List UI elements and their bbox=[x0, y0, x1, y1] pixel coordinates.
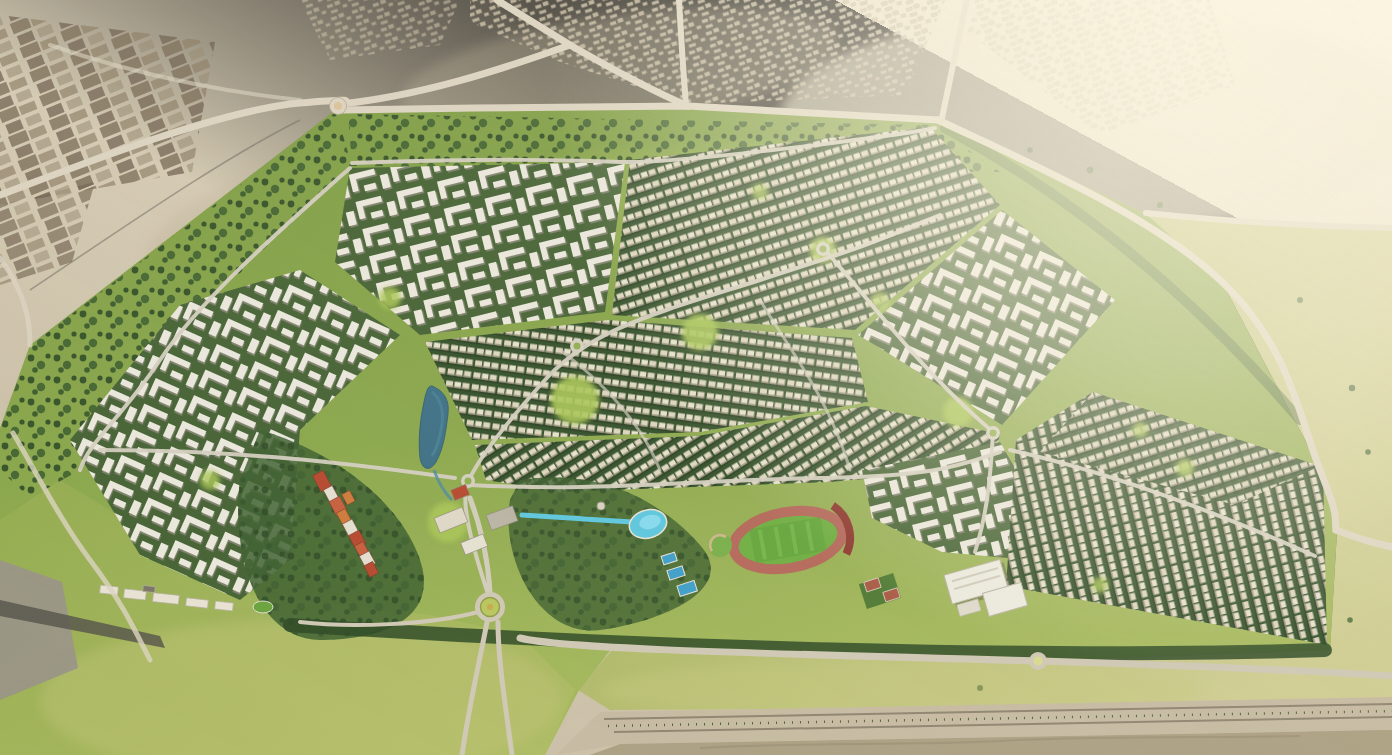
masterplan-rendering bbox=[0, 0, 1392, 755]
warm-haze bbox=[0, 0, 1392, 755]
